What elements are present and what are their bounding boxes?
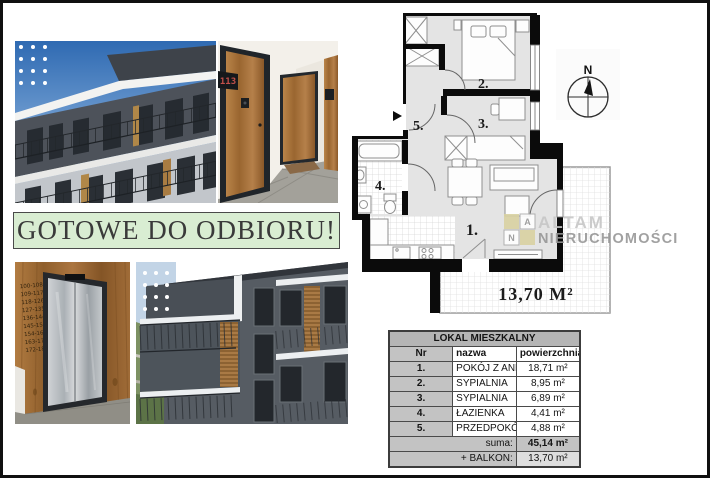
area-table: LOKAL MIESZKALNY Nr nazwa powierzchnia 1… xyxy=(388,330,581,468)
row-name: SYPIALNIA xyxy=(453,392,517,407)
compass-icon: N xyxy=(556,49,620,120)
listing-flyer: 113 GOTOWE DO ODBIORU! 100-108 xyxy=(0,0,710,478)
watermark-tile-a: A xyxy=(524,217,531,227)
wooden-door-left xyxy=(226,51,264,197)
compass-north-label: N xyxy=(584,63,593,77)
row-nr: 1. xyxy=(389,362,453,377)
col-header-area: powierzchnia xyxy=(516,347,580,362)
row-name: SYPIALNIA xyxy=(453,377,517,392)
table-header-row: Nr nazwa powierzchnia xyxy=(389,347,580,362)
photo-building-bottom xyxy=(136,262,348,424)
row-name: ŁAZIENKA xyxy=(453,407,517,422)
room-label-5: 5. xyxy=(413,119,424,134)
row-name: PRZEDPOKÓJ xyxy=(453,422,517,437)
row-area: 4,41 m² xyxy=(516,407,580,422)
wooden-door-right xyxy=(283,74,315,162)
row-area: 8,95 m² xyxy=(516,377,580,392)
room-label-2: 2. xyxy=(478,77,489,92)
row-area: 4,88 m² xyxy=(516,422,580,437)
balcony-label: + BALKON: xyxy=(389,452,516,468)
row-name: POKÓJ Z ANEKSEM xyxy=(453,362,517,377)
banner-text: GOTOWE DO ODBIORU! xyxy=(17,215,336,246)
row-nr: 2. xyxy=(389,377,453,392)
room-label-3: 3. xyxy=(478,117,489,132)
watermark-brand-bottom: NIERUCHOMOŚCI xyxy=(538,229,678,247)
entrance-arrow-icon xyxy=(393,111,402,121)
wood-pillar xyxy=(324,55,338,171)
sum-value: 45,14 m² xyxy=(516,437,580,452)
photo-elevator: 100-108 109-117 118-126 127-135 136-144 … xyxy=(15,262,130,424)
door-handle xyxy=(258,123,261,126)
row-nr: 5. xyxy=(389,422,453,437)
sum-label: suma: xyxy=(389,437,516,452)
watermark-logo: A N ALTAM NIERUCHOMOŚCI xyxy=(504,213,678,247)
row-nr: 4. xyxy=(389,407,453,422)
balcony-area-label: 13,70 M² xyxy=(498,284,573,304)
row-area: 18,71 m² xyxy=(516,362,580,377)
table-sum-row: suma: 45,14 m² xyxy=(389,437,580,452)
col-header-nr: Nr xyxy=(389,347,453,362)
balcony-value: 13,70 m² xyxy=(516,452,580,468)
row-nr: 3. xyxy=(389,392,453,407)
watermark-brand-top: ALTAM xyxy=(538,213,605,232)
table-row: 1. POKÓJ Z ANEKSEM 18,71 m² xyxy=(389,362,580,377)
row-area: 6,89 m² xyxy=(516,392,580,407)
room-label-1: 1. xyxy=(466,222,478,239)
col-header-name: nazwa xyxy=(453,347,517,362)
floor-plan: 1. 2. 3. 4. 5. 13,70 M² N A N ALTAM NIER… xyxy=(348,8,710,320)
table-row: 4. ŁAZIENKA 4,41 m² xyxy=(389,407,580,422)
area-table-title: LOKAL MIESZKALNY xyxy=(389,331,580,347)
door-number: 113 xyxy=(220,77,236,87)
table-row: 3. SYPIALNIA 6,89 m² xyxy=(389,392,580,407)
table-balcony-row: + BALKON: 13,70 m² xyxy=(389,452,580,468)
watermark-tile-n: N xyxy=(508,233,515,243)
elevator-display xyxy=(65,274,85,280)
photo-building-top xyxy=(15,41,216,203)
table-row: 5. PRZEDPOKÓJ 4,88 m² xyxy=(389,422,580,437)
table-row: 2. SYPIALNIA 8,95 m² xyxy=(389,377,580,392)
banner: GOTOWE DO ODBIORU! xyxy=(13,212,340,249)
photo-hallway-doors: 113 xyxy=(218,41,338,203)
room-label-4: 4. xyxy=(375,179,386,194)
